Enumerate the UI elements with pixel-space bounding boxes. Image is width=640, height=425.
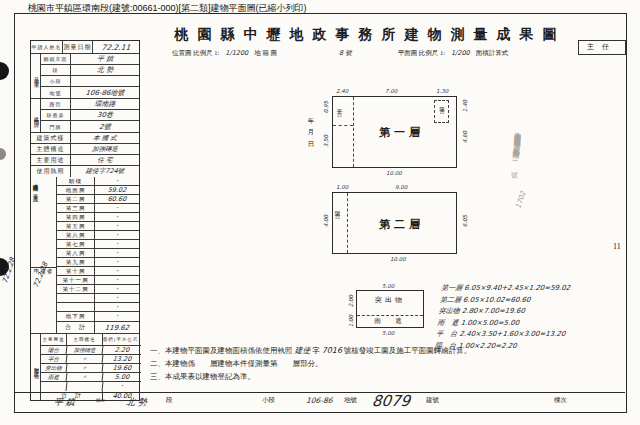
attached-row-area: 5.00 bbox=[103, 373, 142, 381]
cadastre-map-label: 地 籍 圖 bbox=[254, 49, 277, 56]
floor1-annex-boundary bbox=[353, 97, 354, 167]
floor2-dim-bottom: 10.00 bbox=[390, 256, 406, 262]
info-row-label: 主體構造 bbox=[31, 144, 71, 154]
info-row-label: 主要用途 bbox=[31, 155, 71, 165]
building-info-row: 建築式樣 本 國 式 bbox=[31, 133, 139, 144]
info-row-value: 建使字724號 bbox=[70, 166, 139, 177]
attached-row-structure: 〃 bbox=[67, 373, 104, 381]
floor-row-label: 第四層 bbox=[57, 213, 95, 221]
site-row-label: 小段 bbox=[41, 76, 71, 86]
footer-township-label: 鄉市 bbox=[96, 396, 105, 404]
floor1-dim-right-2: 4.60 bbox=[462, 131, 468, 143]
floor2-plan: 陽台 第二層 bbox=[332, 192, 457, 254]
calc-line-3: 突出物 2.80×7.00=19.60 bbox=[438, 306, 611, 318]
attached-row-area: 2.20 bbox=[103, 346, 142, 354]
punch-hole-middle bbox=[0, 148, 6, 160]
floor-area-section-label: 建物面積(平方公尺) bbox=[33, 179, 40, 201]
floor-row-label: 第二層 bbox=[57, 195, 95, 203]
attached-row-use: 平台 bbox=[41, 355, 68, 363]
address-row-value: 30巷 bbox=[70, 110, 139, 120]
site-row-value: 平 鎮 bbox=[70, 54, 139, 64]
left-data-table: 申請人姓名 測量日期 72.2.11 基地坐落 鄉鎮市區 平 鎮 段 北 勢 bbox=[30, 40, 140, 401]
floor-row-value: ・ bbox=[95, 267, 140, 275]
floor-row-label: 第五層 bbox=[57, 222, 95, 230]
note-1-post: 號核發竣工圖及施工平面圖轉繪計算。 bbox=[344, 346, 472, 355]
address-row-label: 路街 bbox=[41, 99, 71, 109]
area-calculation-block: 第一層 6.05×9.40+2.45×1.20=59.02 第二層 6.05×1… bbox=[434, 283, 613, 352]
floor1-dim-right-1: 1.40 bbox=[462, 100, 468, 112]
survey-date-label: 測量日期 bbox=[63, 41, 93, 53]
survey-date-row: 申請人姓名 測量日期 72.2.11 bbox=[31, 41, 139, 54]
floor-row: 騎樓 ・ bbox=[57, 177, 139, 186]
address-row-label: 段巷弄 bbox=[41, 110, 71, 120]
floor-row: 第七層 ・ bbox=[57, 240, 139, 249]
canopy-boundary bbox=[357, 315, 423, 316]
location-scale-value: 1/1200 bbox=[225, 49, 248, 57]
floor-row-label: 第七層 bbox=[57, 240, 95, 248]
floor-row-label: 第十二層 bbox=[57, 285, 95, 293]
attached-row-use bbox=[41, 382, 68, 391]
floor-row-value: ・ bbox=[95, 276, 140, 284]
floor1-annex-notch bbox=[333, 125, 353, 126]
note-1: 一、本建物平面圖及建物面積係依使用執照 建使 字 7016 號核發竣工圖及施工平… bbox=[150, 344, 590, 357]
floor1-dim-top-2: 7.00 bbox=[385, 88, 397, 94]
floor-row: 第二層 60.60 bbox=[57, 195, 139, 204]
sheet-number: 8 號 bbox=[339, 49, 352, 57]
date-column: 年月日 bbox=[306, 112, 315, 148]
floor-row: 第六層 ・ bbox=[57, 231, 139, 240]
page-number: 11 bbox=[613, 242, 621, 251]
floor2-dim-left: 4.00 bbox=[323, 215, 329, 227]
site-rows: 鄉鎮市區 平 鎮 段 北 勢 小段 地號 1 bbox=[41, 54, 139, 98]
site-section-label: 基地坐落 bbox=[31, 54, 41, 98]
footer-township-label-text: 鄉市 bbox=[96, 399, 105, 404]
canopy-label: 雨 遮 bbox=[357, 317, 423, 326]
floor-row-value: ・ bbox=[95, 285, 140, 293]
floor-row: 地下層 ・ bbox=[57, 312, 139, 321]
protrusion-dim-top: 5.00 bbox=[382, 283, 394, 289]
attached-row-use: 陽台 bbox=[41, 346, 68, 354]
floor-row-label: 地下層 bbox=[57, 312, 95, 321]
floor-row: 第五層 ・ bbox=[57, 222, 139, 231]
site-row-value: 106-86地號 bbox=[70, 87, 139, 98]
building-info-row: 主要用途 住 宅 bbox=[31, 155, 139, 166]
footer-building-number-label: 建號 bbox=[426, 396, 439, 405]
floor-row-label: 第十一層 bbox=[57, 276, 95, 284]
attached-row: 平台 〃 13.20 bbox=[41, 355, 141, 364]
attached-area-header: 面積(平方公尺) bbox=[103, 334, 141, 345]
attached-header-row: 主要用途 主體構造 面積(平方公尺) bbox=[41, 334, 141, 346]
attached-row: ・ bbox=[41, 382, 141, 391]
floor-row-value: ・ bbox=[95, 258, 140, 266]
footer-parcel-value: 106-86 bbox=[306, 396, 334, 405]
floor1-dim-left-1: 0.95 bbox=[323, 101, 329, 113]
protrusion-label: 突出物 bbox=[357, 295, 423, 305]
floor1-dim-bottom: 10.00 bbox=[386, 170, 402, 176]
floor-total-row: 合 計 119.62 bbox=[57, 321, 139, 333]
site-row-label: 地號 bbox=[41, 87, 71, 98]
floor-row-label: 第三層 bbox=[57, 204, 95, 212]
floor-row-label: 第八層 bbox=[57, 249, 95, 257]
punch-hole-top bbox=[0, 62, 9, 80]
floor-row: 第十層 ・ bbox=[57, 267, 139, 276]
floor-row-label: 騎樓 bbox=[57, 177, 95, 185]
calc-line-4: 雨 遮 1.00×5.00=5.00 bbox=[437, 318, 610, 330]
footer-section-label: 段 bbox=[166, 396, 173, 405]
attached-use-header: 主要用途 bbox=[41, 334, 67, 345]
floor-row: 第十一層 ・ bbox=[57, 276, 139, 285]
floor-row-value: ・ bbox=[95, 177, 140, 185]
info-row-label: 建築式樣 bbox=[31, 133, 71, 143]
floor-row-value: ・ bbox=[95, 303, 140, 311]
floor-row-label: 地面層 bbox=[57, 186, 95, 194]
attached-row-structure: 〃 bbox=[67, 364, 104, 372]
floor1-dim-left-2: 3.50 bbox=[323, 135, 329, 147]
building-info-rows: 建築式樣 本 國 式 主體構造 加強磚造 主要用途 住 宅 使用執照 建使字72… bbox=[31, 133, 139, 177]
scanned-survey-document: 桃園市平鎮區環南段(建號:00661-000)[第二類]建物平面圖(已縮小列印)… bbox=[0, 0, 640, 425]
stamp-line-2: 改編為環南段 661 號 bbox=[511, 141, 521, 168]
floor-rows: 騎樓 ・ 地面層 59.02 第二層 60.60 bbox=[57, 177, 139, 321]
footer-floor-label: 樓次 bbox=[554, 396, 567, 405]
site-row-label: 段 bbox=[41, 65, 71, 75]
address-section-label: 建物門牌 bbox=[31, 99, 41, 132]
building-info-row: 使用執照 建使字724號 bbox=[31, 166, 139, 177]
note-1-pre: 一、本建物平面圖及建物面積係依使用執照 bbox=[150, 346, 293, 355]
attached-buildings-section: 附屬建物 主要用途 主體構造 面積(平方公尺) 陽台 加強磚造 2.20 bbox=[31, 333, 139, 400]
chief-signature-box: 主任 bbox=[578, 40, 626, 55]
applicant-name-label: 申請人姓名 bbox=[31, 41, 63, 53]
floor-area-section: 建物面積(平方公尺) 申複者 72.2.28 騎樓 ・ bbox=[31, 177, 139, 333]
site-row: 鄉鎮市區 平 鎮 bbox=[41, 54, 139, 65]
footer-section-value: 北 勢 bbox=[125, 396, 147, 409]
protrusion-plan: 突出物 雨 遮 bbox=[356, 290, 424, 328]
info-row-value: 本 國 式 bbox=[70, 133, 139, 143]
info-row-label: 使用執照 bbox=[31, 166, 71, 177]
floor-total-value: 119.62 bbox=[94, 322, 139, 333]
attached-row-use: 突出物 bbox=[41, 364, 68, 372]
protrusion-dim-left: 2.00 bbox=[348, 295, 354, 307]
footer-building-number-value: 8079 bbox=[371, 392, 411, 410]
floor2-name: 第二層 bbox=[379, 217, 424, 232]
floor-row-value: ・ bbox=[95, 240, 140, 248]
address-rows: 路街 環南路 段巷弄 30巷 門牌 2號 bbox=[41, 99, 139, 132]
floor-row: ・ bbox=[57, 303, 139, 312]
floor2-annex-boundary bbox=[347, 193, 348, 253]
survey-date-value: 72.2.11 bbox=[92, 41, 139, 53]
site-location-section: 基地坐落 鄉鎮市區 平 鎮 段 北 勢 小段 bbox=[31, 54, 139, 99]
address-row-value: 2號 bbox=[70, 121, 139, 132]
site-row-value: 北 勢 bbox=[70, 65, 139, 75]
stamp-line-1: 本建物平面圖因地籍圖重測 bbox=[513, 126, 522, 139]
floor-row: 第四層 ・ bbox=[57, 213, 139, 222]
site-row-label: 鄉鎮市區 bbox=[41, 54, 71, 64]
note-1-hand-number: 7016 bbox=[322, 346, 342, 355]
notes-block: 一、本建物平面圖及建物面積係依使用執照 建使 字 7016 號核發竣工圖及施工平… bbox=[150, 344, 590, 383]
floor-plan-label: 平面圖 比例尺 1: bbox=[398, 49, 445, 56]
floor-row: 第十二層 ・ bbox=[57, 285, 139, 294]
form-title: 桃園縣中壢地政事務所建物測量成果圖 bbox=[160, 26, 580, 44]
floor1-dim-top-3: 1.30 bbox=[436, 88, 448, 94]
floor2-dim-top-1: 1.00 bbox=[336, 184, 348, 190]
calc-line-2: 第二層 6.05×10.02=60.60 bbox=[439, 295, 612, 307]
site-row-value bbox=[70, 76, 139, 86]
attached-row: 陽台 加強磚造 2.20 bbox=[41, 346, 141, 355]
floor-row-label bbox=[57, 303, 95, 311]
canopy-dim-left: 1.00 bbox=[348, 315, 354, 327]
attached-row-area: 19.60 bbox=[103, 364, 142, 372]
floor-row-value: ・ bbox=[95, 222, 140, 230]
floor-row-value: ・ bbox=[95, 204, 140, 212]
floor-row-value: ・ bbox=[95, 249, 140, 257]
address-section: 建物門牌 路街 環南路 段巷弄 30巷 門牌 2號 bbox=[31, 99, 139, 133]
footer-strip: 平 鎮 鄉市 北 勢 段 小段 106-86 地號 8079 建號 樓次 bbox=[14, 393, 625, 411]
floor2-dim-top-2: 9.00 bbox=[395, 184, 407, 190]
site-row: 地號 106-86地號 bbox=[41, 87, 139, 98]
floor1-name: 第一層 bbox=[379, 125, 424, 140]
calc-line-5: 平 台 2.40×3.50+1.60×3.00=13.20 bbox=[436, 329, 609, 341]
floor-total-label: 合 計 bbox=[57, 322, 95, 333]
floor1-corner-label: 陽台 bbox=[438, 103, 444, 105]
attached-rows: 陽台 加強磚造 2.20 平台 〃 13.20 突出物 bbox=[41, 346, 141, 391]
attached-row: 雨遮 〃 5.00 bbox=[41, 373, 141, 382]
footer-parcel-label: 地號 bbox=[344, 396, 357, 405]
floor-row-value: ・ bbox=[95, 294, 140, 302]
floor-row-value: 59.02 bbox=[95, 186, 140, 194]
floor1-corner-box: 陽台 bbox=[434, 100, 449, 123]
note-1-hand-license: 建使 bbox=[294, 346, 310, 355]
building-info-row: 主體構造 加強磚造 bbox=[31, 144, 139, 155]
floor1-dim-top-1: 2.40 bbox=[336, 88, 348, 94]
attached-row-structure: 〃 bbox=[67, 355, 104, 363]
info-row-value: 加強磚造 bbox=[70, 144, 139, 154]
floor-row-value: 60.60 bbox=[95, 195, 140, 203]
attached-structure-header: 主體構造 bbox=[67, 334, 103, 345]
floor1-annex-label: 平台 bbox=[337, 105, 344, 107]
attached-section-label: 附屬建物 bbox=[31, 334, 41, 400]
reviewer-box: 申複者 72.2.28 bbox=[31, 267, 56, 333]
note-1-mid: 字 bbox=[312, 346, 320, 355]
scale-header-row: 位置圖 比例尺 1:1/1200地 籍 圖8 號平面圖 比例尺 1:1/200面… bbox=[172, 49, 514, 58]
site-row: 段 北 勢 bbox=[41, 65, 139, 76]
attached-row-structure: 加強磚造 bbox=[67, 346, 104, 354]
floor-row-value: ・ bbox=[95, 312, 140, 321]
floor-row-label: 第十層 bbox=[57, 267, 95, 275]
floor-area-strip: 建物面積(平方公尺) 申複者 72.2.28 bbox=[31, 177, 57, 333]
footer-subsection-label: 小段 bbox=[262, 396, 275, 405]
area-calc-label: 面積計算式 bbox=[476, 49, 509, 56]
floor-row: 地面層 59.02 bbox=[57, 186, 139, 195]
floor-row: 第九層 ・ bbox=[57, 258, 139, 267]
footer-township-value: 平 鎮 bbox=[53, 396, 75, 409]
floor-row-value: ・ bbox=[95, 231, 140, 239]
floor-row-label: 第九層 bbox=[57, 258, 95, 266]
protrusion-dim-bottom: 5.00 bbox=[382, 330, 394, 336]
floor-row: 第八層 ・ bbox=[57, 249, 139, 258]
note-3: 三、本成果表以建物登記為準。 bbox=[150, 370, 590, 383]
attached-row-use: 雨遮 bbox=[41, 373, 68, 381]
address-row-label: 門牌 bbox=[41, 121, 71, 132]
floor-row-label: 第六層 bbox=[57, 231, 95, 239]
location-map-label: 位置圖 比例尺 1: bbox=[172, 49, 219, 56]
info-row-value: 住 宅 bbox=[70, 155, 139, 165]
address-row-value: 環南路 bbox=[70, 99, 139, 109]
calc-line-1: 第一層 6.05×9.40+2.45×1.20=59.02 bbox=[440, 283, 613, 295]
floor-row-label bbox=[57, 294, 95, 302]
floor-row: ・ bbox=[57, 294, 139, 303]
floor-row-value: ・ bbox=[95, 213, 140, 221]
attached-row-area: ・ bbox=[103, 382, 142, 391]
plan-scale-value: 1/200 bbox=[451, 49, 470, 57]
attached-row: 突出物 〃 19.60 bbox=[41, 364, 141, 373]
address-row: 門牌 2號 bbox=[41, 121, 139, 132]
site-row: 小段 bbox=[41, 76, 139, 87]
reviewer-date: 72.2.28 bbox=[32, 261, 49, 289]
address-row: 段巷弄 30巷 bbox=[41, 110, 139, 121]
attached-row-area: 13.20 bbox=[103, 355, 142, 363]
attached-row-structure bbox=[67, 382, 104, 391]
floor-row: 第三層 ・ bbox=[57, 204, 139, 213]
address-row: 路街 環南路 bbox=[41, 99, 139, 110]
floor2-annex-label: 陽台 bbox=[335, 207, 342, 209]
floor2-dim-right: 6.05 bbox=[462, 215, 468, 227]
floor1-plan: 平台 陽台 第一層 bbox=[332, 96, 457, 168]
note-2: 二、本建物係 層建物本件僅測量第 層部分。 bbox=[150, 357, 590, 370]
